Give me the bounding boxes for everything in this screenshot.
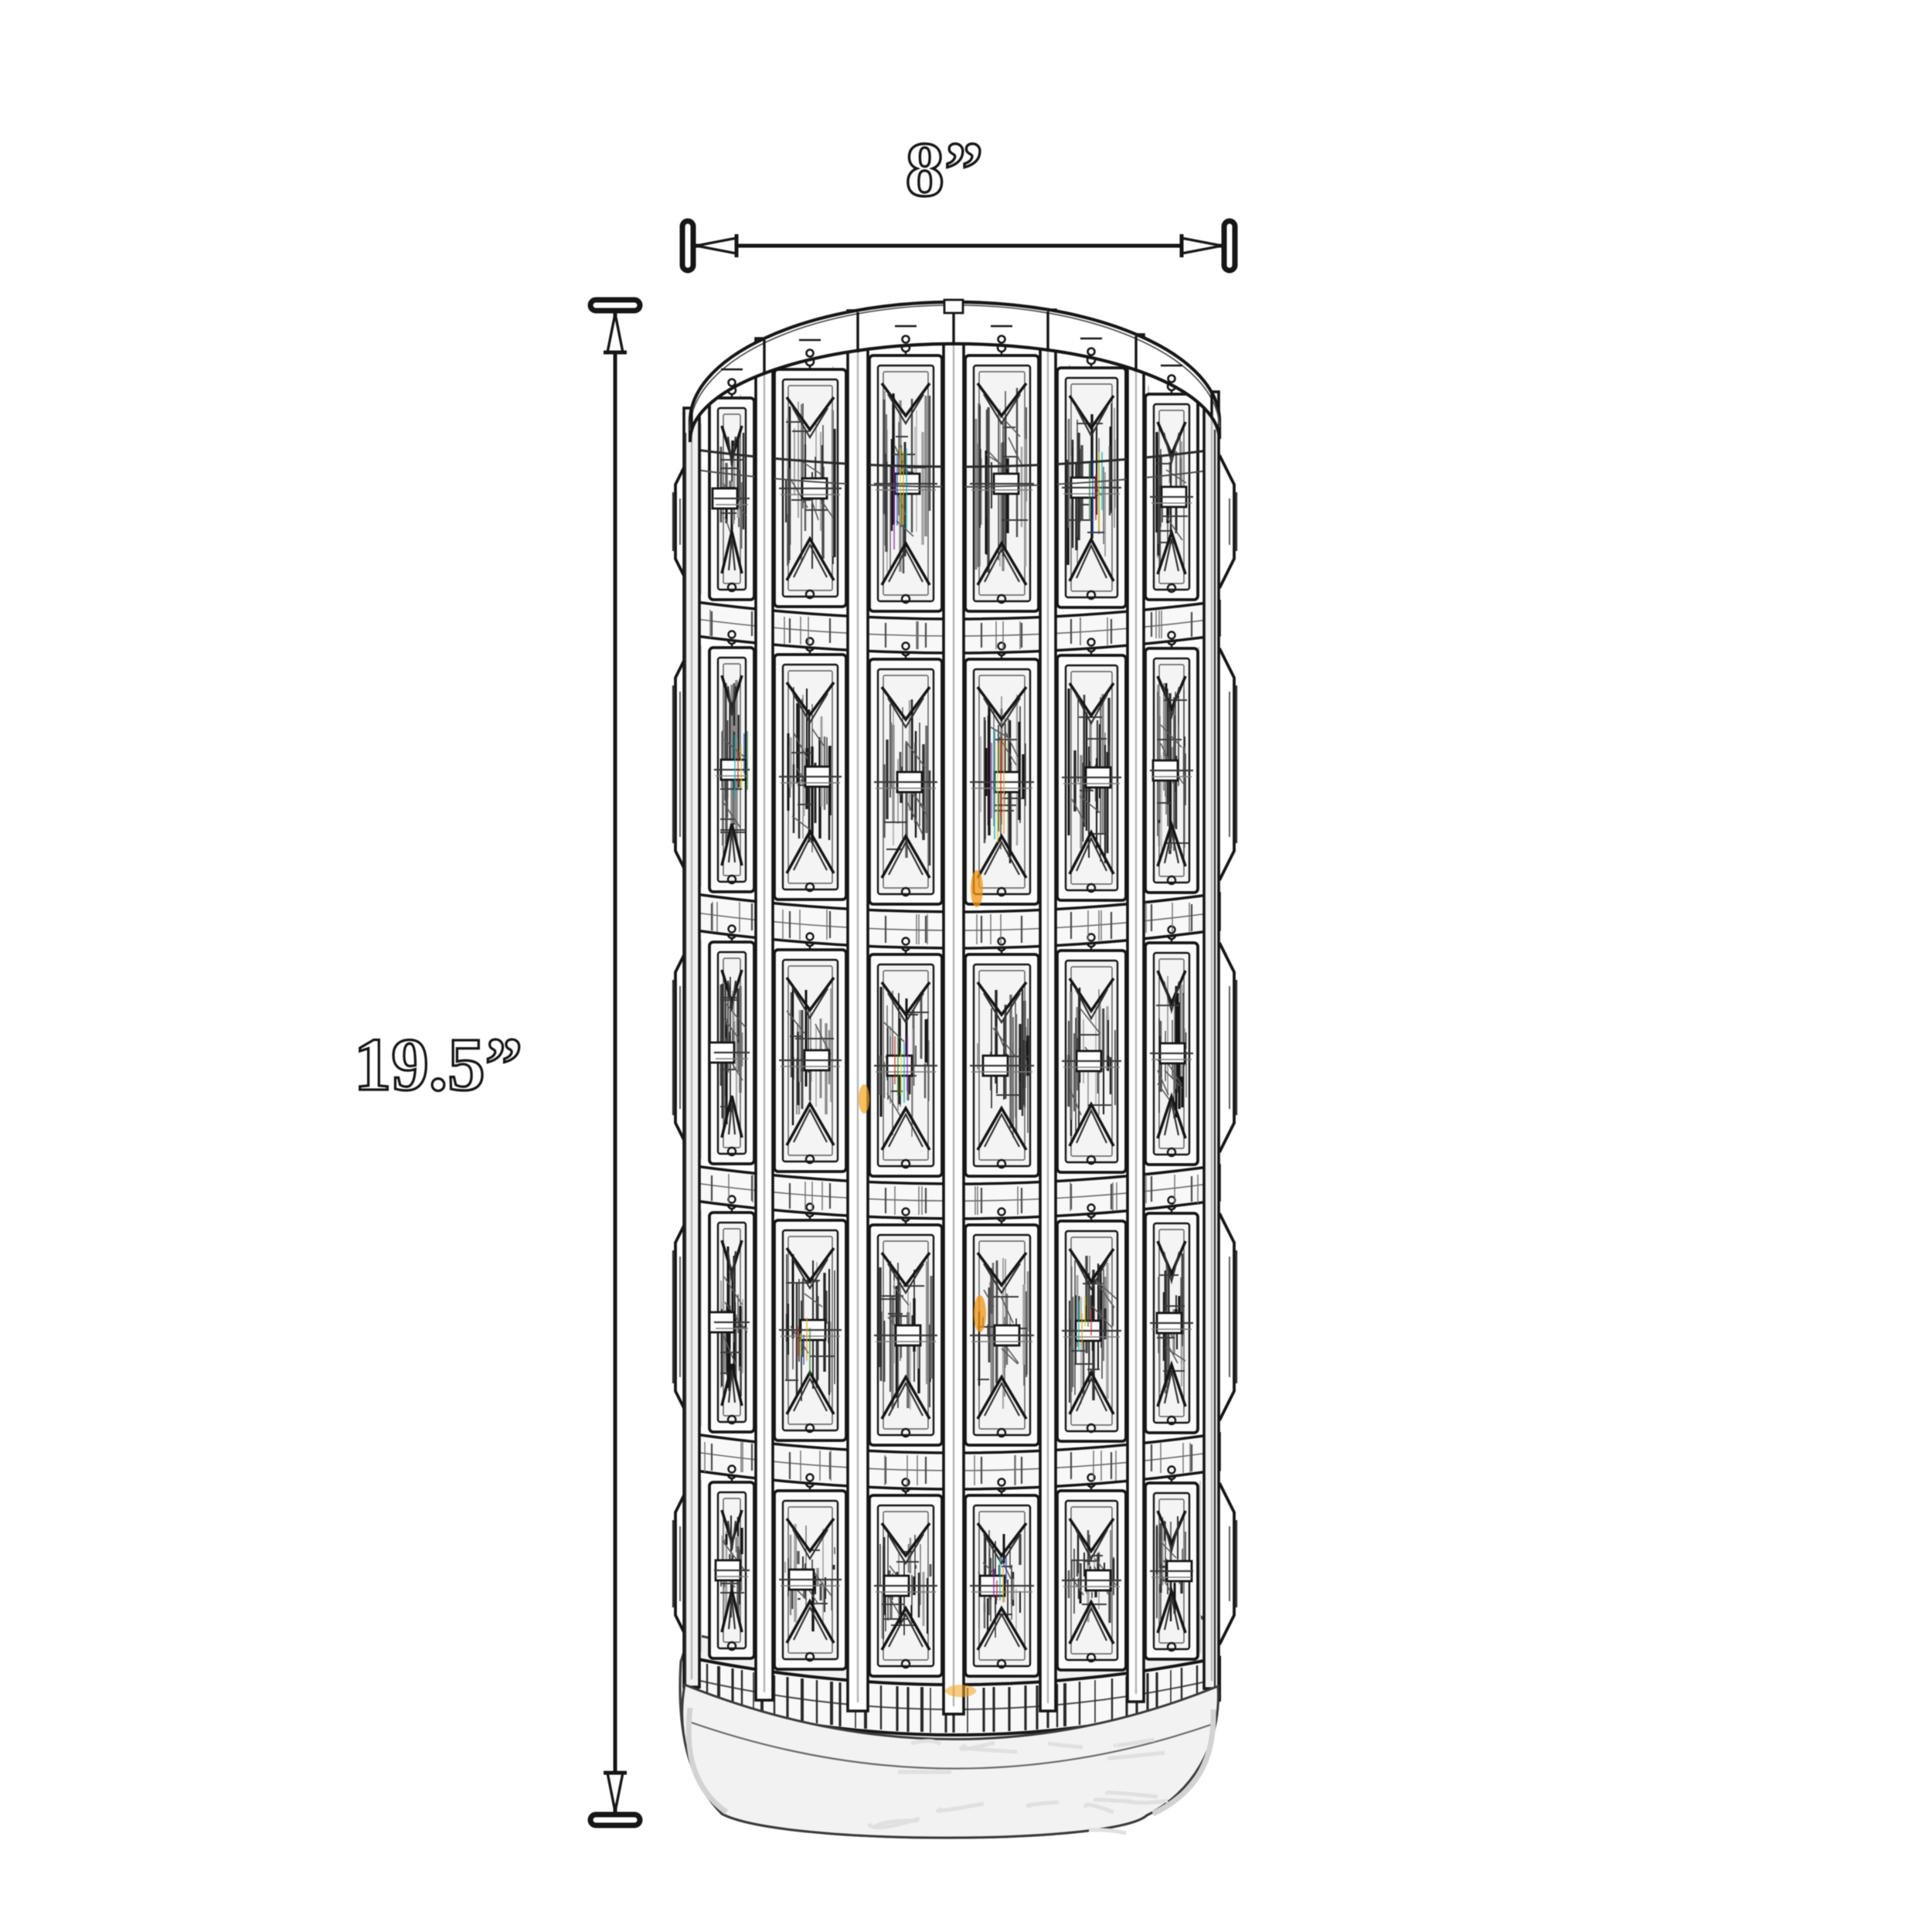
svg-text:19.5”: 19.5” [354,1023,522,1106]
svg-text:8”: 8” [906,126,984,213]
